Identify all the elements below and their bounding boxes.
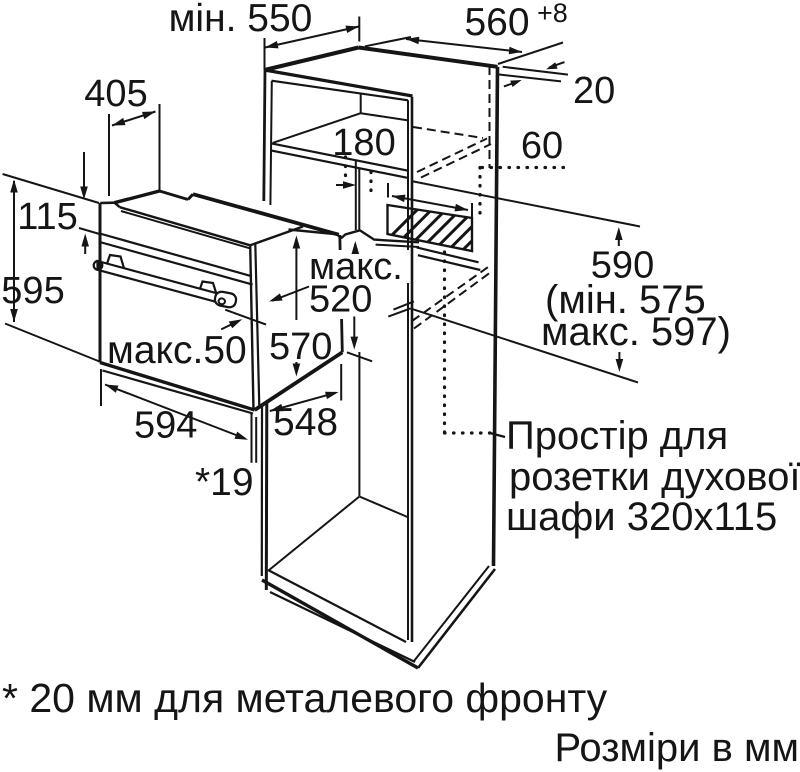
svg-text:+8: +8	[537, 0, 568, 28]
svg-text:макс.50: макс.50	[107, 329, 247, 372]
svg-text:595: 595	[1, 270, 64, 312]
svg-text:548: 548	[273, 401, 338, 444]
svg-text:розетки духової: розетки духової	[509, 455, 800, 499]
svg-text:570: 570	[269, 326, 332, 368]
svg-text:115: 115	[17, 196, 78, 238]
svg-text:мін. 550: мін. 550	[169, 0, 313, 40]
svg-text:20: 20	[573, 70, 615, 112]
svg-text:405: 405	[84, 73, 147, 115]
svg-text:макс. 597): макс. 597)	[541, 310, 731, 354]
svg-text:180: 180	[332, 122, 395, 164]
svg-text:Розміри в мм: Розміри в мм	[554, 726, 799, 770]
svg-text:* 20 мм для металевого фронту: * 20 мм для металевого фронту	[2, 675, 608, 721]
svg-text:520: 520	[309, 279, 372, 321]
svg-text:шафи 320х115: шафи 320х115	[506, 495, 777, 539]
svg-text:594: 594	[134, 405, 197, 447]
svg-text:560: 560	[464, 1, 529, 44]
svg-text:Простір для: Простір для	[506, 414, 728, 458]
svg-text:60: 60	[521, 125, 563, 167]
svg-text:*19: *19	[195, 461, 254, 504]
